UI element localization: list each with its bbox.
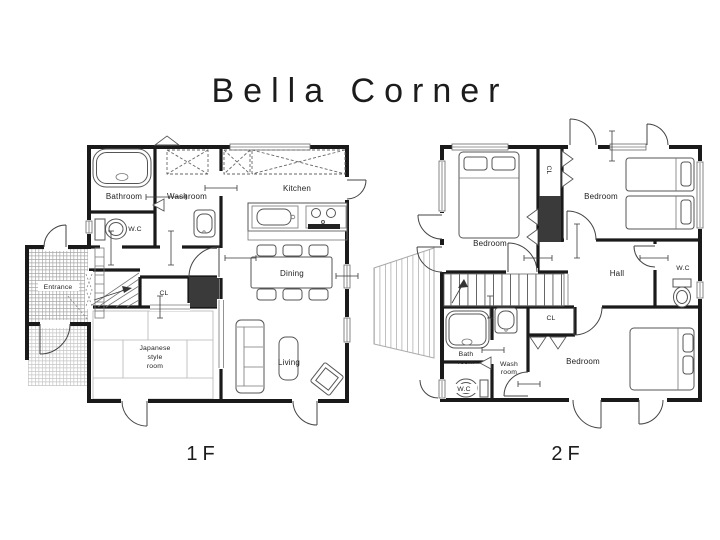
floor-label-2f: 2F <box>551 443 584 465</box>
stairs-2f <box>444 274 564 306</box>
room-label-wc-north: W.C <box>676 265 689 272</box>
floor-plan-page: Bella Corner <box>0 0 720 540</box>
room-label-bedroom-ne: Bedroom <box>584 192 618 201</box>
entrance-hatch <box>28 249 88 386</box>
floor-plan-1f: Bathroom Washroom W.C Kitchen Dining Liv… <box>27 136 366 426</box>
bedroom-ne-door <box>567 211 596 240</box>
room-label-wash-2: room <box>501 369 517 376</box>
bed-twin-1 <box>626 158 694 191</box>
room-label-living: Living <box>278 358 300 367</box>
south-door-2f-1 <box>573 400 601 428</box>
room-label-bedroom-nw: Bedroom <box>473 239 507 248</box>
porch-hatch <box>28 326 88 386</box>
room-label-cl-south: CL <box>546 315 555 322</box>
toilet-icon-2f-north <box>673 279 691 307</box>
room-label-wc-1f: W.C <box>128 226 141 233</box>
north-window-door-2 <box>647 124 668 145</box>
washbasin-icon-2f <box>495 308 517 333</box>
north-window-door-1 <box>570 119 596 145</box>
floor-label-1f: 1F <box>186 443 219 465</box>
bed-twin-2 <box>626 196 694 229</box>
room-label-bath-1: Bath <box>459 351 474 358</box>
ldk-door <box>189 247 219 277</box>
upper-cabinets-dashed <box>167 150 345 174</box>
bathtub-icon-2f <box>446 311 489 348</box>
closet-dark-2f <box>539 196 561 242</box>
room-label-japanese-2: style <box>148 354 163 361</box>
bed-double-south <box>630 328 694 390</box>
room-label-bedroom-s: Bedroom <box>566 357 600 366</box>
sofa-icon <box>236 320 264 393</box>
room-label-wc-south: W.C <box>457 386 470 393</box>
room-label-entrance: Entrance <box>44 284 73 291</box>
floor-plan-2f: Bedroom Bedroom Bedroom CL CL Hall W.C W… <box>374 119 704 428</box>
room-label-dining: Dining <box>280 269 304 278</box>
bedroom-nw-door <box>508 243 537 272</box>
vent-triangle <box>155 136 179 145</box>
room-label-washroom: Washroom <box>167 192 207 201</box>
room-label-bathroom: Bathroom <box>106 192 142 201</box>
bed-double-nw <box>459 152 519 238</box>
room-label-wash-1: Wash <box>500 361 518 368</box>
bedroom-s-door <box>574 307 602 335</box>
room-label-bath-2: room <box>458 359 474 366</box>
room-label-cl-1f: CL <box>159 290 168 297</box>
room-label-cl-top: CL <box>545 165 552 174</box>
room-label-hall: Hall <box>610 269 625 278</box>
bathtub-icon <box>93 149 151 187</box>
wc-s-window-swing <box>420 380 438 398</box>
floor-plans-drawing: Bathroom Washroom W.C Kitchen Dining Liv… <box>0 0 720 540</box>
accent-chair-icon <box>310 362 344 396</box>
washbasin-icon <box>194 210 215 237</box>
room-label-japanese-1: Japanese <box>139 345 170 352</box>
room-label-kitchen: Kitchen <box>283 184 311 193</box>
kitchen-counter <box>248 203 347 240</box>
storage-dark-1f <box>189 277 219 307</box>
room-label-japanese-3: room <box>147 363 163 370</box>
balcony-deck <box>374 248 434 358</box>
